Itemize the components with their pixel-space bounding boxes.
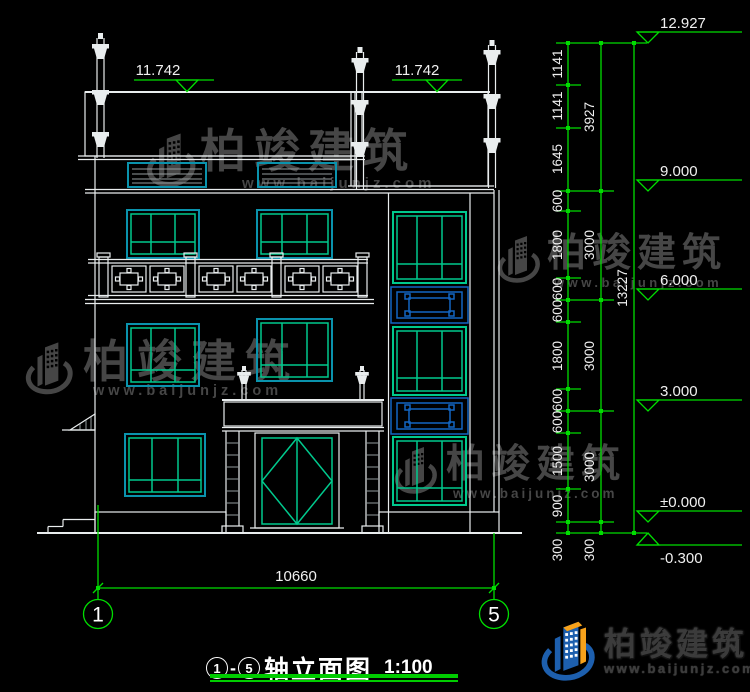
window — [257, 319, 332, 381]
window — [127, 210, 199, 258]
overall-width-dim: 10660 — [275, 568, 317, 585]
axis-bubble-1: 1 — [84, 600, 113, 629]
dim-inner-2: 1645 — [550, 144, 565, 174]
eave-level-right: 11.742 — [395, 62, 440, 79]
side-eave-bracket — [62, 414, 95, 430]
level-1: 9.000 — [660, 163, 698, 180]
canopy-finial — [355, 366, 369, 400]
porch-pillar — [362, 431, 383, 533]
first-floor — [62, 414, 205, 496]
attic-louvers — [128, 163, 336, 187]
elevation-drawing-canvas: 11.742 11.742 1141 1 — [0, 0, 750, 692]
dim-mid-3: 3000 — [582, 452, 597, 482]
baijun-logo-icon — [540, 618, 598, 686]
dim-mid-4: 300 — [582, 539, 597, 562]
lattice-panel — [391, 287, 468, 323]
cad-elevation-screenshot: 柏竣建筑 www.baijunjz.com 柏竣建筑 www.baijunjz.… — [0, 0, 750, 692]
axis-number-left: 1 — [92, 604, 104, 627]
dim-inner-6: 600 — [550, 300, 565, 323]
finial-pillar — [484, 40, 501, 188]
title-underline-thin — [210, 680, 458, 682]
right-dimension-chain: 1141 1141 1645 600 1800 600 600 1800 600… — [550, 41, 647, 561]
dim-inner-8: 600 — [550, 389, 565, 412]
dim-total: 13227 — [615, 269, 630, 307]
title-underline-thick — [210, 674, 458, 678]
level-3: 3.000 — [660, 383, 698, 400]
second-floor-windows — [127, 319, 332, 386]
dim-inner-12: 300 — [550, 539, 565, 562]
finial-pillar — [92, 33, 109, 158]
entrance-door — [250, 433, 344, 528]
dim-inner-0: 1141 — [550, 49, 565, 78]
dim-inner-7: 1800 — [550, 341, 565, 371]
window — [127, 324, 199, 386]
dim-mid-2: 3000 — [582, 341, 597, 371]
elevation-markers: 12.927 9.000 6.000 3.000 ±0.000 -0.300 — [637, 15, 742, 567]
dim-mid-1: 3000 — [582, 230, 597, 260]
third-floor-windows — [127, 210, 332, 258]
level-4: ±0.000 — [660, 494, 706, 511]
dim-inner-10: 1500 — [550, 446, 565, 476]
eave-level-left: 11.742 — [136, 62, 181, 79]
dim-inner-11: 900 — [550, 495, 565, 518]
dim-inner-5: 600 — [550, 278, 565, 301]
dim-inner-1: 1141 — [550, 91, 565, 120]
porch-entrance — [222, 400, 384, 533]
balcony-railing — [85, 253, 374, 304]
eave-markers: 11.742 11.742 — [134, 62, 462, 92]
window — [125, 434, 205, 496]
dim-inner-9: 600 — [550, 411, 565, 434]
logo-brand-text: 柏竣建筑 — [604, 628, 750, 662]
stair-window — [393, 327, 466, 395]
stair-window — [393, 437, 466, 505]
stair-window — [393, 212, 466, 283]
louver-vent — [258, 163, 336, 187]
porch-pillar — [222, 431, 243, 533]
window — [257, 210, 332, 258]
level-5: -0.300 — [660, 550, 703, 567]
baijun-logo: 柏竣建筑 www.baijunjz.com — [540, 618, 750, 686]
axis-number-right: 5 — [488, 604, 500, 627]
dim-inner-3: 600 — [550, 190, 565, 213]
level-0: 12.927 — [660, 15, 706, 32]
lattice-panel — [391, 398, 468, 434]
stairwell-column — [391, 212, 468, 505]
finial-pillar — [352, 47, 369, 190]
dim-mid-0: 3927 — [582, 102, 597, 132]
axis-bubble-5: 5 — [480, 600, 509, 629]
railing-lattice — [112, 266, 357, 292]
logo-url-text: www.baijunjz.com — [604, 661, 750, 676]
base-and-ground — [37, 512, 522, 533]
roof — [78, 92, 494, 186]
louver-vent — [128, 163, 206, 187]
canopy-finial — [237, 366, 251, 400]
dim-inner-4: 1800 — [550, 230, 565, 260]
level-2: 6.000 — [660, 272, 698, 289]
